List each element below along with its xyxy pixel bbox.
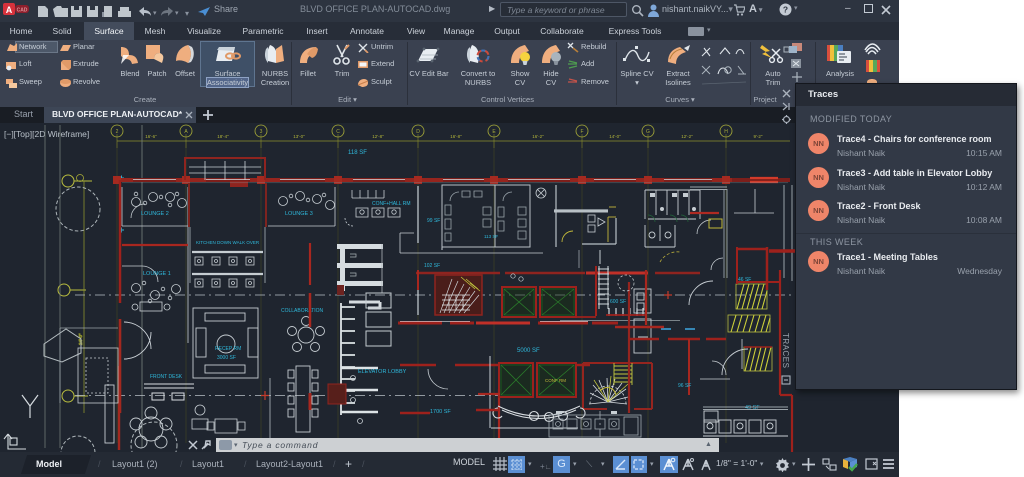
svg-text:COLLABORATION: COLLABORATION <box>281 308 324 314</box>
svg-text:ELEVATOR LOBBY: ELEVATOR LOBBY <box>358 369 407 375</box>
svg-text:118 SF: 118 SF <box>348 150 367 156</box>
svg-text:5000 SF: 5000 SF <box>517 348 540 354</box>
svg-text:LOUNGE 1: LOUNGE 1 <box>143 271 171 277</box>
svg-text:RECEP RM: RECEP RM <box>215 346 241 352</box>
svg-text:CONF RM: CONF RM <box>545 378 566 383</box>
svg-text:102 SF: 102 SF <box>424 263 440 269</box>
svg-text:E: E <box>492 129 496 135</box>
svg-text:▾: ▾ <box>153 10 157 17</box>
svg-text:3: 3 <box>260 129 263 135</box>
svg-text:96 SF: 96 SF <box>678 383 691 389</box>
svg-text:A: A <box>184 129 188 135</box>
svg-text:49 SF: 49 SF <box>745 405 760 411</box>
svg-text:FRONT DESK: FRONT DESK <box>150 374 183 380</box>
svg-text:3000 SF: 3000 SF <box>217 355 236 361</box>
svg-text:1700 SF: 1700 SF <box>430 409 451 415</box>
svg-text:600 SF: 600 SF <box>610 299 626 305</box>
svg-text:12'-8": 12'-8" <box>372 134 384 139</box>
svg-text:14'-0": 14'-0" <box>609 134 621 139</box>
svg-text:18'-4": 18'-4" <box>217 134 229 139</box>
svg-text:99 SF: 99 SF <box>427 218 440 224</box>
svg-text:G: G <box>646 129 650 135</box>
svg-text:H: H <box>724 129 728 135</box>
svg-text:C: C <box>336 129 340 135</box>
svg-text:CONF+HALL RM: CONF+HALL RM <box>372 201 411 207</box>
svg-text:D: D <box>416 129 420 135</box>
svg-text:A: A <box>6 5 13 15</box>
svg-text:CAD: CAD <box>17 8 28 14</box>
svg-text:9'-2": 9'-2" <box>754 134 763 139</box>
svg-text:LOUNGE 3: LOUNGE 3 <box>285 211 313 217</box>
svg-text:16'-2": 16'-2" <box>532 134 544 139</box>
svg-text:F: F <box>580 129 583 135</box>
svg-text:16'-6": 16'-6" <box>145 134 157 139</box>
svg-text:?: ? <box>783 5 788 15</box>
svg-text:▾: ▾ <box>185 9 189 18</box>
svg-text:113 SF: 113 SF <box>484 234 498 239</box>
svg-text:▾: ▾ <box>175 10 179 17</box>
svg-text:2: 2 <box>116 129 119 135</box>
svg-text:16'-8": 16'-8" <box>450 134 462 139</box>
svg-text:13'-0": 13'-0" <box>293 134 305 139</box>
svg-text:LOUNGE 2: LOUNGE 2 <box>141 211 169 217</box>
svg-text:12'-2": 12'-2" <box>681 134 693 139</box>
svg-text:KITCHEN DOWN WALK OVER: KITCHEN DOWN WALK OVER <box>196 240 260 245</box>
